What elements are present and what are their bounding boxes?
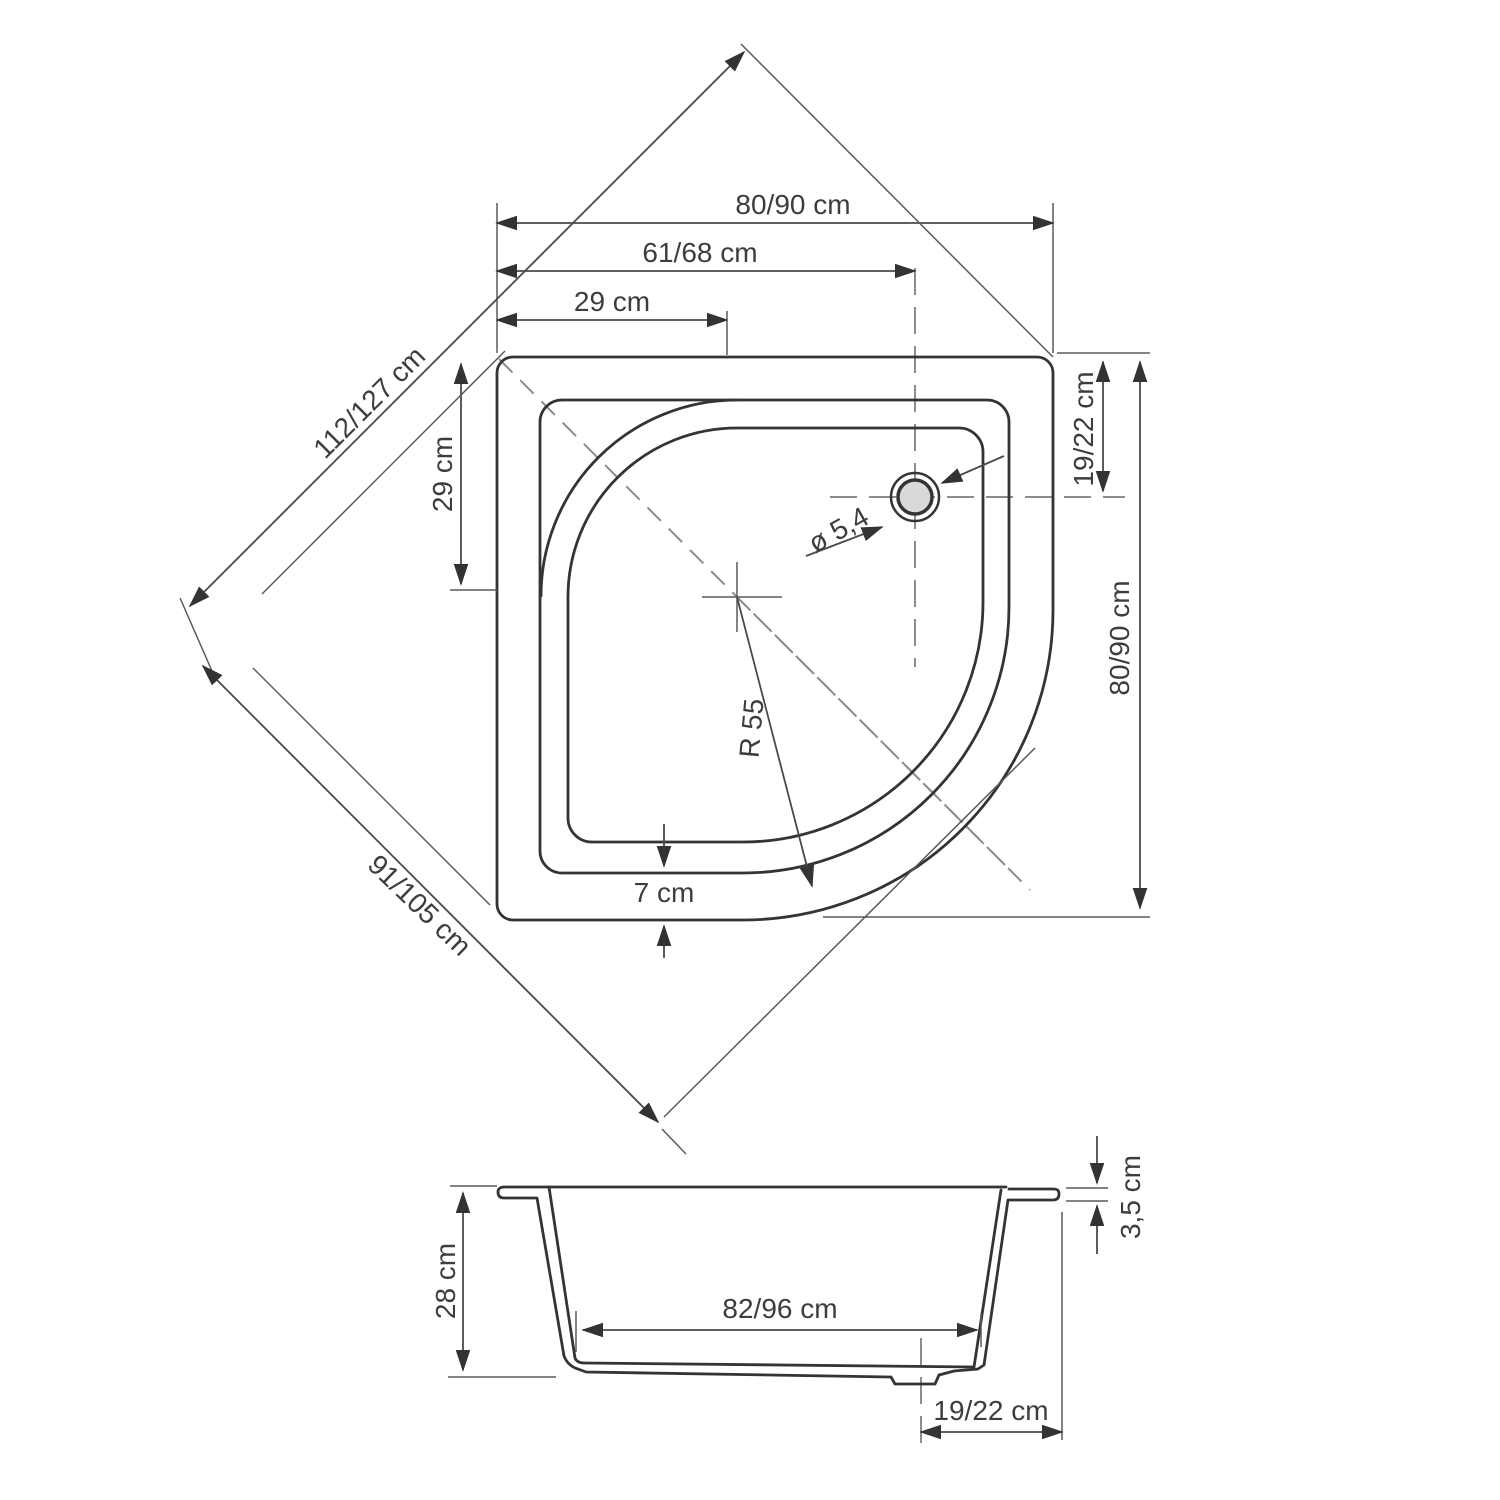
rim-height-label: 3,5 cm xyxy=(1115,1155,1146,1239)
radius-label: R 55 xyxy=(734,697,770,759)
drain-offset-top-label: 19/22 cm xyxy=(1068,371,1099,486)
section-drain-offset-label: 19/22 cm xyxy=(933,1395,1048,1426)
offset-vertical-label: 29 cm xyxy=(427,436,458,512)
depth-right-label: 80/90 cm xyxy=(1104,580,1135,695)
offset-horizontal-label: 29 cm xyxy=(574,286,650,317)
diagonal-front-label: 91/105 cm xyxy=(362,849,478,962)
drain-pointer-arrow xyxy=(942,456,1004,483)
rim-width-label: 7 cm xyxy=(634,877,695,908)
diag-left-tick xyxy=(180,598,212,671)
drain-inner-circle xyxy=(898,480,932,514)
tray-outer-rim xyxy=(497,357,1053,920)
drawing-svg: ø 5,4 R 55 80/90 cm 61/68 cm 29 cm 29 cm… xyxy=(0,0,1500,1500)
drain-diameter-label: ø 5,4 xyxy=(803,501,874,559)
plan-view: ø 5,4 R 55 80/90 cm 61/68 cm 29 cm 29 cm… xyxy=(180,44,1150,1154)
section-view: 28 cm 82/96 cm 19/22 cm 3,5 cm xyxy=(430,1136,1146,1448)
width-top-label: 80/90 cm xyxy=(735,189,850,220)
shower-tray-technical-drawing: ø 5,4 R 55 80/90 cm 61/68 cm 29 cm 29 cm… xyxy=(0,0,1500,1500)
section-inner-profile xyxy=(549,1187,1001,1367)
width-inner-label: 61/68 cm xyxy=(642,237,757,268)
section-height-label: 28 cm xyxy=(430,1243,461,1319)
diag-bottom-tick xyxy=(662,1129,686,1154)
radius-center-cross xyxy=(702,562,782,632)
diag-ext-lower-right xyxy=(664,748,1035,1117)
dim-diagonal-back xyxy=(190,52,744,606)
diagonal-back-label: 112/127 cm xyxy=(307,340,431,464)
floor-width-label: 82/96 cm xyxy=(722,1293,837,1324)
